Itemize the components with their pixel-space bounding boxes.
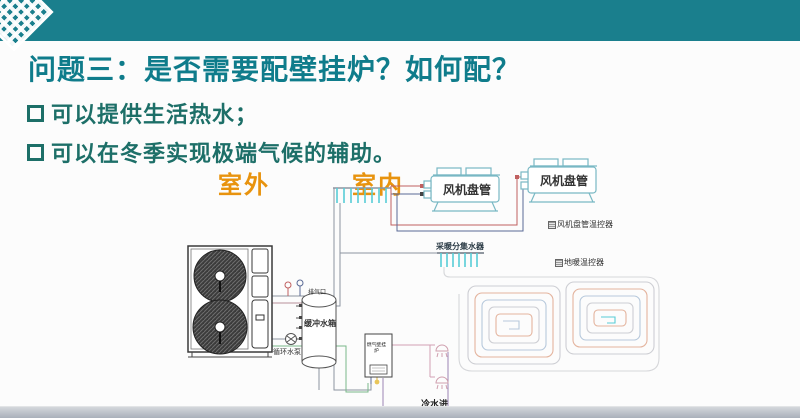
circulation-pump-icon (286, 334, 297, 345)
indoor-manifold (337, 188, 386, 203)
fan-2-icon (193, 300, 247, 354)
shower-icon-1 (436, 345, 448, 357)
circulation-pump-label: 循环水泵 (273, 347, 301, 357)
buffer-tank-label: 缓冲水箱 (304, 318, 336, 329)
buffer-tank (296, 293, 336, 368)
fan-coil-thermostat-icon (548, 221, 556, 229)
heating-manifold-label: 采暖分集水器 (436, 241, 484, 252)
exhaust-port-label: 排气口 (308, 287, 326, 296)
fan-coil-1-label: 风机盘管 (443, 181, 491, 198)
floor-coil-1 (468, 286, 560, 364)
floor-coil-2 (566, 282, 654, 354)
heating-manifold (437, 253, 484, 267)
floor-heating-coils (444, 267, 659, 371)
fan-coil-2-label: 风机盘管 (540, 172, 588, 189)
floor-thermostat-icon (555, 259, 563, 267)
bottom-edge-band (0, 406, 800, 418)
boiler-label: 燃气壁挂炉 (366, 343, 387, 354)
wall-hung-boiler (365, 334, 392, 377)
floor-thermostat-label: 地暖温控器 (564, 257, 604, 268)
fan-1-icon (194, 250, 246, 302)
hvac-schematic (0, 0, 800, 418)
presentation-slide: 问题三：是否需要配壁挂炉？如何配？ 可以提供生活热水； 可以在冬季实现极端气候的… (0, 0, 800, 418)
shower-icon-2 (436, 377, 448, 389)
fan-coil-thermostat-label: 风机盘管温控器 (557, 219, 613, 230)
heat-pump-outdoor-unit (188, 246, 272, 357)
